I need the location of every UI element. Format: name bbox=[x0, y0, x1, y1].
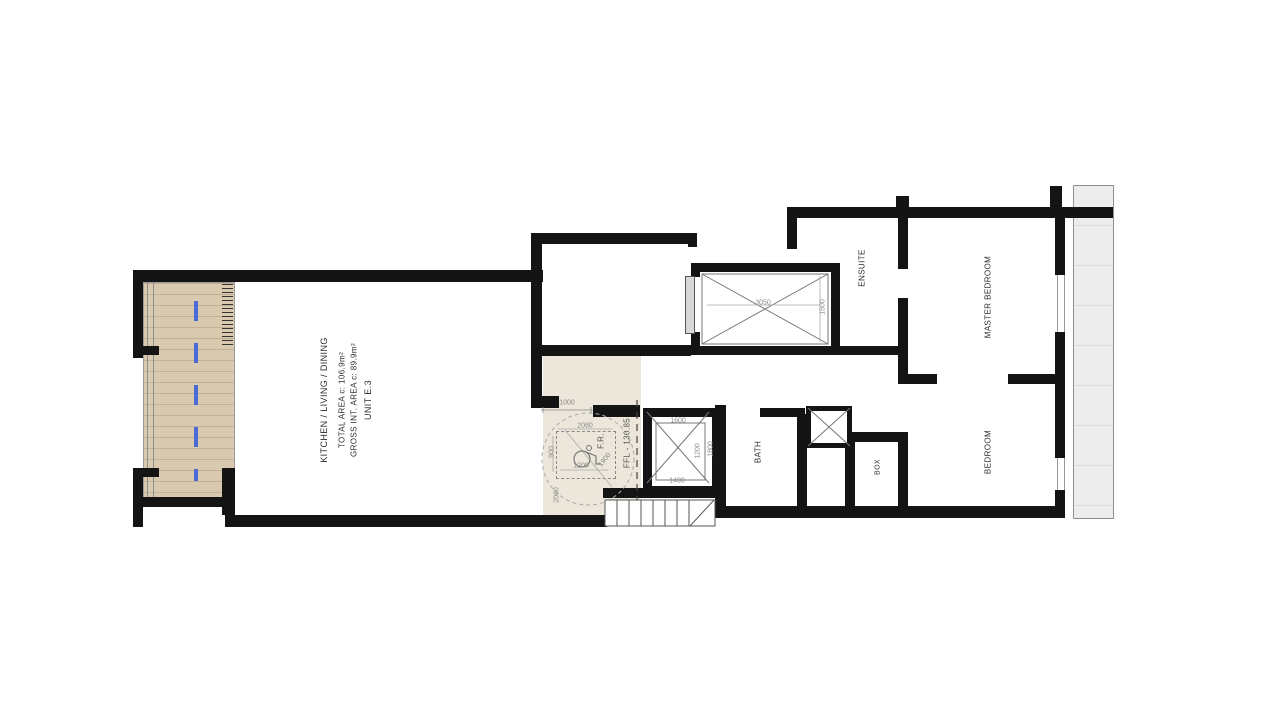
ffl-level-label: FFL - 130.85 bbox=[623, 418, 632, 468]
dim-shaft-width: 3050 bbox=[755, 300, 771, 307]
fire-riser-label: F.R. bbox=[597, 433, 606, 449]
dim-shaft-depth: 1500 bbox=[820, 299, 827, 315]
dim-lift-shaft-depth: 1800 bbox=[708, 441, 715, 457]
dim-fr-zone-depth: 900 bbox=[549, 446, 556, 458]
dim-entry-opening: 1000 bbox=[559, 400, 575, 407]
box-label: BOX bbox=[875, 459, 882, 475]
dim-fr-inner-width: 1200 bbox=[573, 463, 589, 470]
gross-area-label: GROSS INT. AREA c: 89.9m² bbox=[350, 343, 359, 457]
bath-label: BATH bbox=[754, 441, 763, 463]
unit-name-label: UNIT E.3 bbox=[363, 380, 373, 420]
ensuite-label: ENSUITE bbox=[858, 249, 867, 286]
dim-lobby-depth: 2080 bbox=[554, 487, 561, 503]
master-bedroom-label: MASTER BEDROOM bbox=[984, 256, 993, 339]
dim-lift-door: 1400 bbox=[669, 478, 685, 485]
total-area-label: TOTAL AREA c: 106.9m² bbox=[338, 352, 347, 448]
dim-lift-depth: 1200 bbox=[695, 443, 702, 459]
plan-linework bbox=[0, 0, 1280, 719]
bedroom-label: BEDROOM bbox=[984, 430, 993, 474]
dim-fr-zone-width: 2080 bbox=[577, 423, 593, 430]
dim-lift-width: 1600 bbox=[670, 418, 686, 425]
kitchen-living-dining-label: KITCHEN / LIVING / DINING bbox=[319, 337, 329, 463]
floor-plan: UNIT E.3 GROSS INT. AREA c: 89.9m² TOTAL… bbox=[0, 0, 1280, 719]
